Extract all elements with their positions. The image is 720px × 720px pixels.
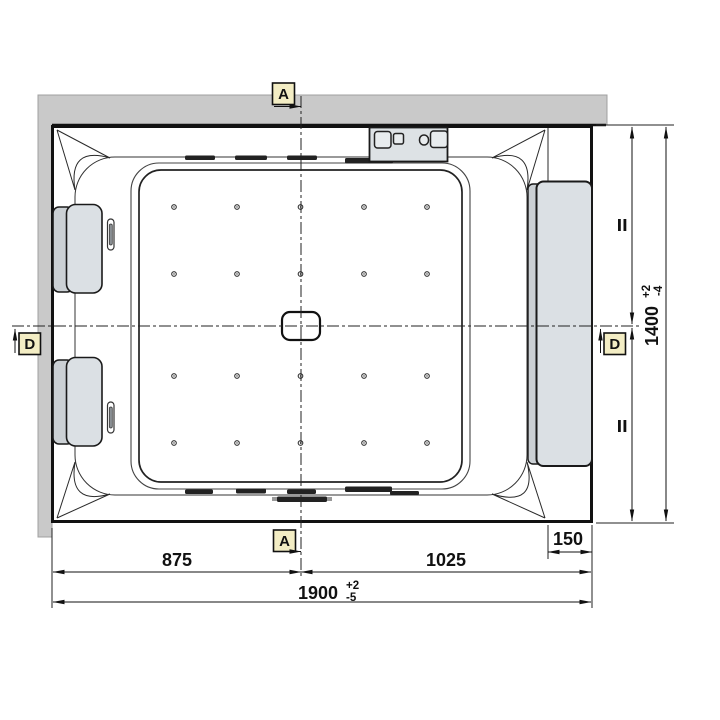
panel-button-3 [420,135,429,145]
jet-center-dot [236,442,237,443]
bathtub-technical-drawing: A A D D 875 1025 15 [0,0,720,720]
section-letter: D [609,336,620,353]
jet-center-dot [173,206,174,207]
dim-tol-1900-plus: +2 [346,580,359,592]
jet-center-dot [426,206,427,207]
jet-center-dot [426,442,427,443]
drawing-canvas: A A D D 875 1025 15 [0,0,720,720]
section-label-d-right: D [601,329,626,355]
jet-center-dot [363,273,364,274]
dim-tol-1400-minus: -4 [653,285,665,296]
section-label-d-left: D [15,329,41,355]
jet-center-dot [236,273,237,274]
panel-button-4 [431,131,448,148]
side-shelf [528,182,592,467]
jet-center-dot [173,375,174,376]
dim-text-1900: 1900 [298,583,338,603]
dim-tol-1900-minus: -5 [346,592,357,604]
section-label-a-bottom: A [274,530,302,552]
section-letter: D [24,336,35,353]
jet-center-dot [363,206,364,207]
equal-spacing-mark-bottom [618,420,626,432]
overflow-bar [277,497,327,503]
headrest-top [53,205,102,294]
headrest-bottom [53,358,102,447]
panel-button-2 [394,134,404,145]
panel-button-1 [375,132,392,149]
jet-center-dot [236,375,237,376]
jet-center-dot [426,375,427,376]
jet-center-dot [236,206,237,207]
grab-slot-top [108,219,115,250]
control-panel [370,128,448,162]
dim-text-1900-group: 1900 +2 -5 [298,580,359,604]
dim-text-1400: 1400 [642,306,662,346]
section-letter: A [279,533,290,550]
dim-text-150: 150 [553,529,583,549]
jet-center-dot [426,273,427,274]
equal-spacing-mark-top [618,219,626,231]
dim-text-875: 875 [162,550,192,570]
jet-center-dot [363,375,364,376]
section-letter: A [278,86,289,103]
grab-slot-bottom [108,402,115,433]
jet-center-dot [173,273,174,274]
jet-center-dot [363,442,364,443]
dim-text-1025: 1025 [426,550,466,570]
jet-center-dot [173,442,174,443]
dim-text-1400-group: 1400 +2 -4 [641,285,665,346]
dim-tol-1400-plus: +2 [641,285,653,298]
